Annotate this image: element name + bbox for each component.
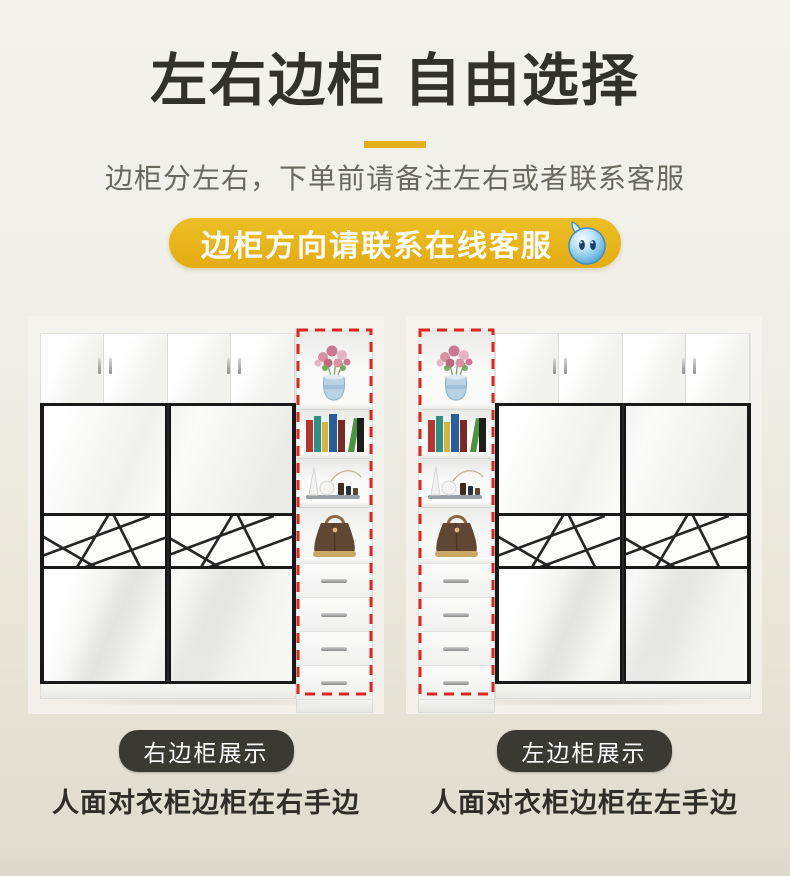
side-cabinet <box>418 330 495 713</box>
water-drop-mascot-icon <box>563 220 609 266</box>
handbag-shelf <box>419 508 494 558</box>
product-left-cabinet: 左边柜展示 人面对衣柜边柜在左手边 <box>406 316 762 820</box>
side-cabinet <box>296 330 373 713</box>
books-shelf <box>297 410 372 452</box>
caption-right: 人面对衣柜边柜在右手边 <box>52 781 360 820</box>
page-subtitle: 边柜分左右，下单前请备注左右或者联系客服 <box>0 157 790 197</box>
decor-shelf <box>419 459 494 501</box>
flower-vase-shelf <box>297 331 372 403</box>
top-cabinets <box>40 333 296 403</box>
product-comparison-row: 右边柜展示 人面对衣柜边柜在右手边 <box>0 316 790 820</box>
contact-service-badge[interactable]: 边柜方向请联系在线客服 <box>169 218 621 268</box>
drawer-stack <box>419 564 494 699</box>
wardrobe-left-version <box>418 330 751 702</box>
wardrobe-main-unit <box>495 333 751 699</box>
decor-shelf <box>297 459 372 501</box>
wardrobe-right-version <box>40 330 373 702</box>
top-cabinets <box>495 333 751 403</box>
contact-service-label: 边柜方向请联系在线客服 <box>201 221 553 265</box>
display-badge-right: 右边柜展示 <box>119 730 294 772</box>
wardrobe-photo-right-cabinet <box>28 316 384 714</box>
promo-section: 左右边柜 自由选择 边柜分左右，下单前请备注左右或者联系客服 边柜方向请联系在线… <box>0 0 790 876</box>
sliding-doors <box>40 403 296 684</box>
product-right-cabinet: 右边柜展示 人面对衣柜边柜在右手边 <box>28 316 384 820</box>
display-badge-left: 左边柜展示 <box>497 730 672 772</box>
drawer-stack <box>297 564 372 699</box>
page-title: 左右边柜 自由选择 <box>0 50 790 113</box>
books-shelf <box>419 410 494 452</box>
handbag-shelf <box>297 508 372 558</box>
sliding-doors <box>495 403 751 684</box>
caption-left: 人面对衣柜边柜在左手边 <box>430 781 738 820</box>
title-divider <box>364 141 426 148</box>
wardrobe-photo-left-cabinet <box>406 316 762 714</box>
wardrobe-main-unit <box>40 333 296 699</box>
flower-vase-shelf <box>419 331 494 403</box>
